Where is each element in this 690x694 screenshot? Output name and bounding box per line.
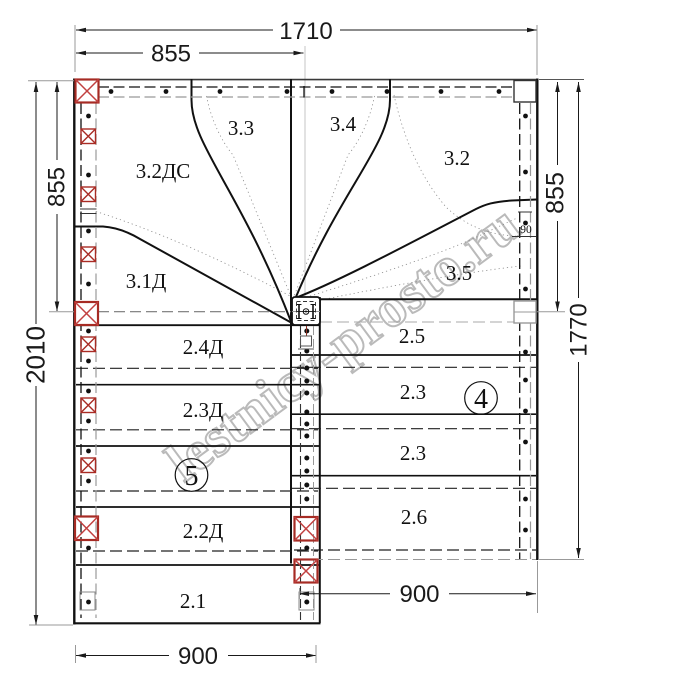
svg-text:2.5: 2.5 [399,324,425,348]
svg-text:2.3Д: 2.3Д [183,398,224,422]
svg-text:2.3: 2.3 [400,441,426,465]
svg-text:2010: 2010 [21,326,51,384]
svg-text:900: 900 [399,581,439,608]
svg-text:3.3: 3.3 [228,116,254,140]
svg-text:2.6: 2.6 [401,505,427,529]
svg-text:855: 855 [44,167,71,207]
svg-text:2.4Д: 2.4Д [183,335,224,359]
svg-text:3.2: 3.2 [444,146,470,170]
svg-text:3.5: 3.5 [446,261,472,285]
svg-text:2.2Д: 2.2Д [183,519,224,543]
svg-text:90: 90 [520,224,532,236]
svg-text:4: 4 [474,384,488,415]
svg-text:1710: 1710 [279,18,332,45]
svg-text:1770: 1770 [566,303,593,356]
svg-text:3.4: 3.4 [330,112,357,136]
svg-text:2.1: 2.1 [180,589,206,613]
svg-text:900: 900 [178,643,218,670]
svg-text:3.1Д: 3.1Д [126,269,167,293]
svg-text:5: 5 [185,461,199,492]
svg-text:2.3: 2.3 [400,380,426,404]
svg-text:855: 855 [151,41,191,68]
svg-text:3.2ДС: 3.2ДС [136,159,191,183]
svg-text:855: 855 [542,172,570,214]
